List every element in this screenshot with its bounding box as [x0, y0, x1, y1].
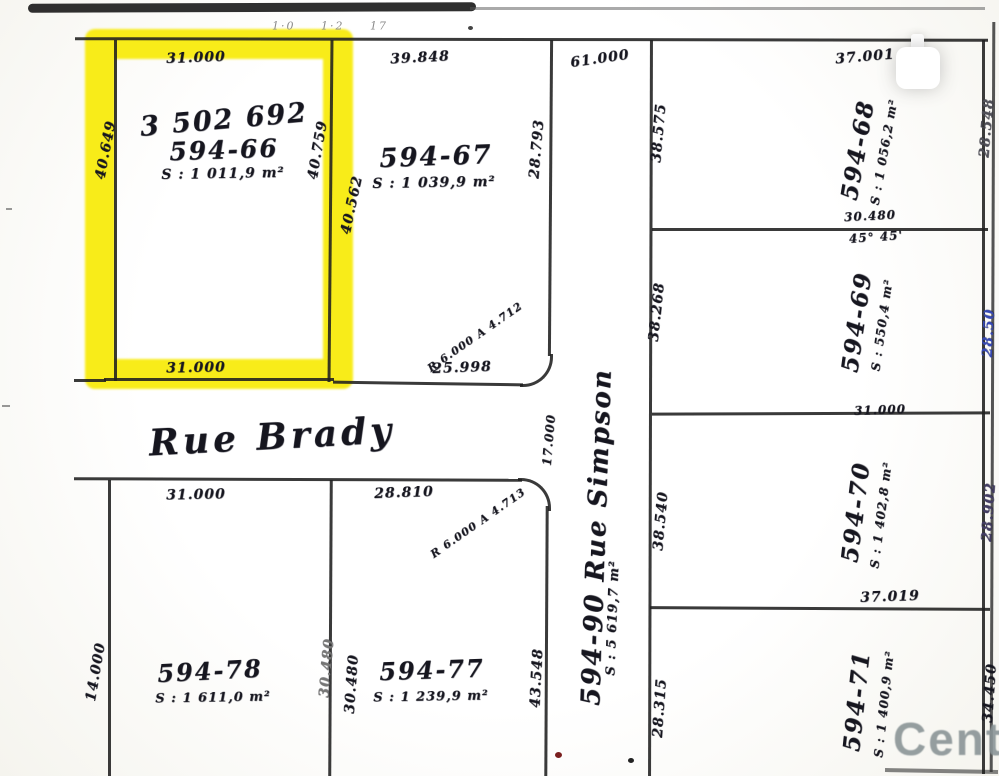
scan-margin-tick [2, 405, 10, 407]
dimension-label: 61.000 [569, 47, 630, 71]
lot-594-67-number: 594-67 [379, 140, 493, 174]
lot-594-71-number: 594-71 [838, 649, 875, 753]
dimension-label: 30.480 [844, 208, 897, 225]
boundary-line [652, 228, 988, 231]
dimension-label: 31.000 [166, 486, 226, 503]
lot-594-78-area: S : 1 611,0 m² [155, 689, 271, 706]
boundary-line [548, 40, 553, 356]
cadastral-plat-map: 1·0 1·2 17 3 502 692 594-66 S : 1 011,9 … [0, 0, 999, 776]
boundary-line [74, 477, 522, 482]
dimension-label: 31.000 [166, 49, 226, 67]
dimension-label: 28.902 [979, 482, 999, 543]
boundary-line [544, 506, 548, 776]
overlay-button[interactable] [896, 47, 940, 89]
lot-594-66-number: 594-66 [169, 134, 279, 167]
watermark-centris: Centi [893, 712, 999, 766]
dimension-label: 37.019 [860, 588, 920, 606]
boundary-line [333, 381, 523, 387]
dimension-label: 43.548 [527, 648, 546, 708]
corner-arc [520, 354, 553, 387]
street-label-rue-brady: Rue Brady [148, 410, 396, 465]
dimension-label: 38.540 [650, 491, 671, 552]
dimension-label: 28.315 [650, 678, 670, 739]
dimension-label: 17.000 [540, 414, 558, 467]
dimension-label: 30.480 [316, 638, 337, 699]
highlight-marker [85, 29, 353, 389]
dimension-label: R 6.000 A 4.713 [428, 485, 528, 560]
dimension-label: 28.50 [980, 308, 999, 358]
lot-594-77-number: 594-77 [379, 654, 485, 687]
boundary-line [328, 480, 333, 776]
boundary-line [74, 379, 106, 382]
boundary-line [652, 411, 990, 415]
boundary-line [650, 606, 990, 611]
scan-edge-top-thin [470, 7, 985, 10]
dimension-label: 14.000 [83, 641, 109, 702]
street-area-rue-simpson: S : 5 619,7 m² [603, 560, 622, 676]
ink-speck [555, 752, 562, 758]
dimension-label: 28.793 [526, 119, 547, 180]
ink-speck [628, 758, 634, 763]
lot-594-66-area: S : 1 011,9 m² [161, 165, 285, 183]
lot-594-78-number: 594-78 [157, 654, 264, 688]
dimension-label: 37.001 [835, 46, 896, 67]
boundary-line [114, 40, 117, 381]
boundary-line [108, 480, 111, 776]
boundary-line [104, 378, 334, 381]
scan-margin-tick [6, 208, 12, 210]
dimension-label: 45° 45' [848, 228, 903, 246]
dimension-label: 28.810 [374, 484, 434, 502]
dimension-label: 31.000 [854, 402, 906, 418]
top-margin-marks: 1·0 1·2 17 [272, 20, 388, 33]
dimension-label: 39.848 [390, 48, 450, 67]
ink-speck [468, 26, 473, 30]
scan-edge-top [28, 2, 476, 13]
dimension-label: 31.000 [166, 359, 226, 376]
lot-594-77-area: S : 1 239,9 m² [373, 688, 489, 705]
lot-594-67-area: S : 1 039,9 m² [372, 174, 496, 192]
dimension-label: 30.480 [342, 654, 362, 715]
